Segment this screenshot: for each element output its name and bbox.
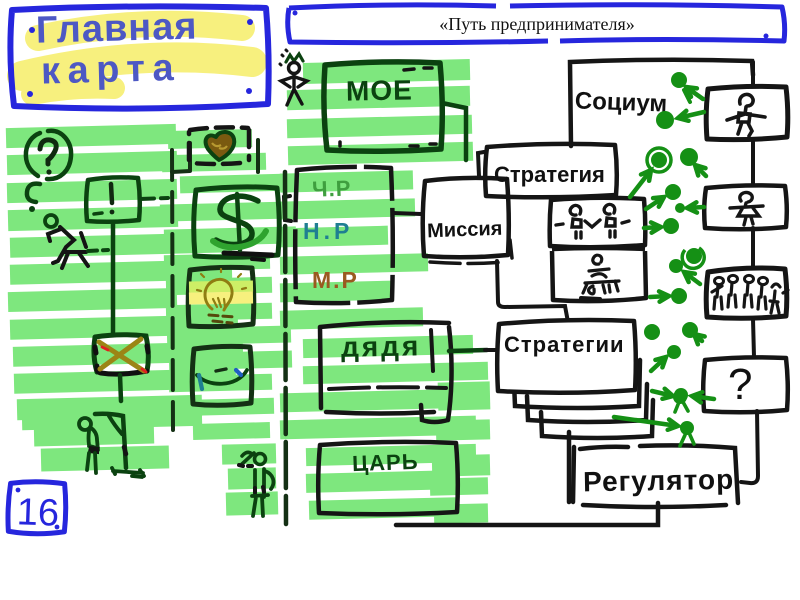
- svg-text:16: 16: [16, 491, 60, 534]
- svg-text:Ч.Р: Ч.Р: [312, 175, 352, 201]
- svg-text:Стратегии: Стратегии: [504, 332, 625, 357]
- svg-text:дядя: дядя: [341, 330, 422, 362]
- svg-text:карта: карта: [40, 47, 181, 93]
- svg-text:Стратегия: Стратегия: [494, 162, 605, 187]
- svg-text:Миссия: Миссия: [427, 218, 503, 243]
- svg-text:Регулятор: Регулятор: [583, 464, 735, 498]
- svg-text:«Путь предпринимателя»: «Путь предпринимателя»: [439, 14, 635, 34]
- svg-text:ЦАРЬ: ЦАРЬ: [352, 449, 419, 476]
- svg-text:Социум: Социум: [574, 87, 667, 117]
- svg-text:Главная: Главная: [35, 6, 198, 52]
- svg-text:МОЕ: МОЕ: [346, 74, 413, 106]
- svg-text:?: ?: [728, 360, 752, 409]
- svg-text:М.Р: М.Р: [312, 267, 359, 293]
- svg-text:Н.Р: Н.Р: [303, 218, 353, 244]
